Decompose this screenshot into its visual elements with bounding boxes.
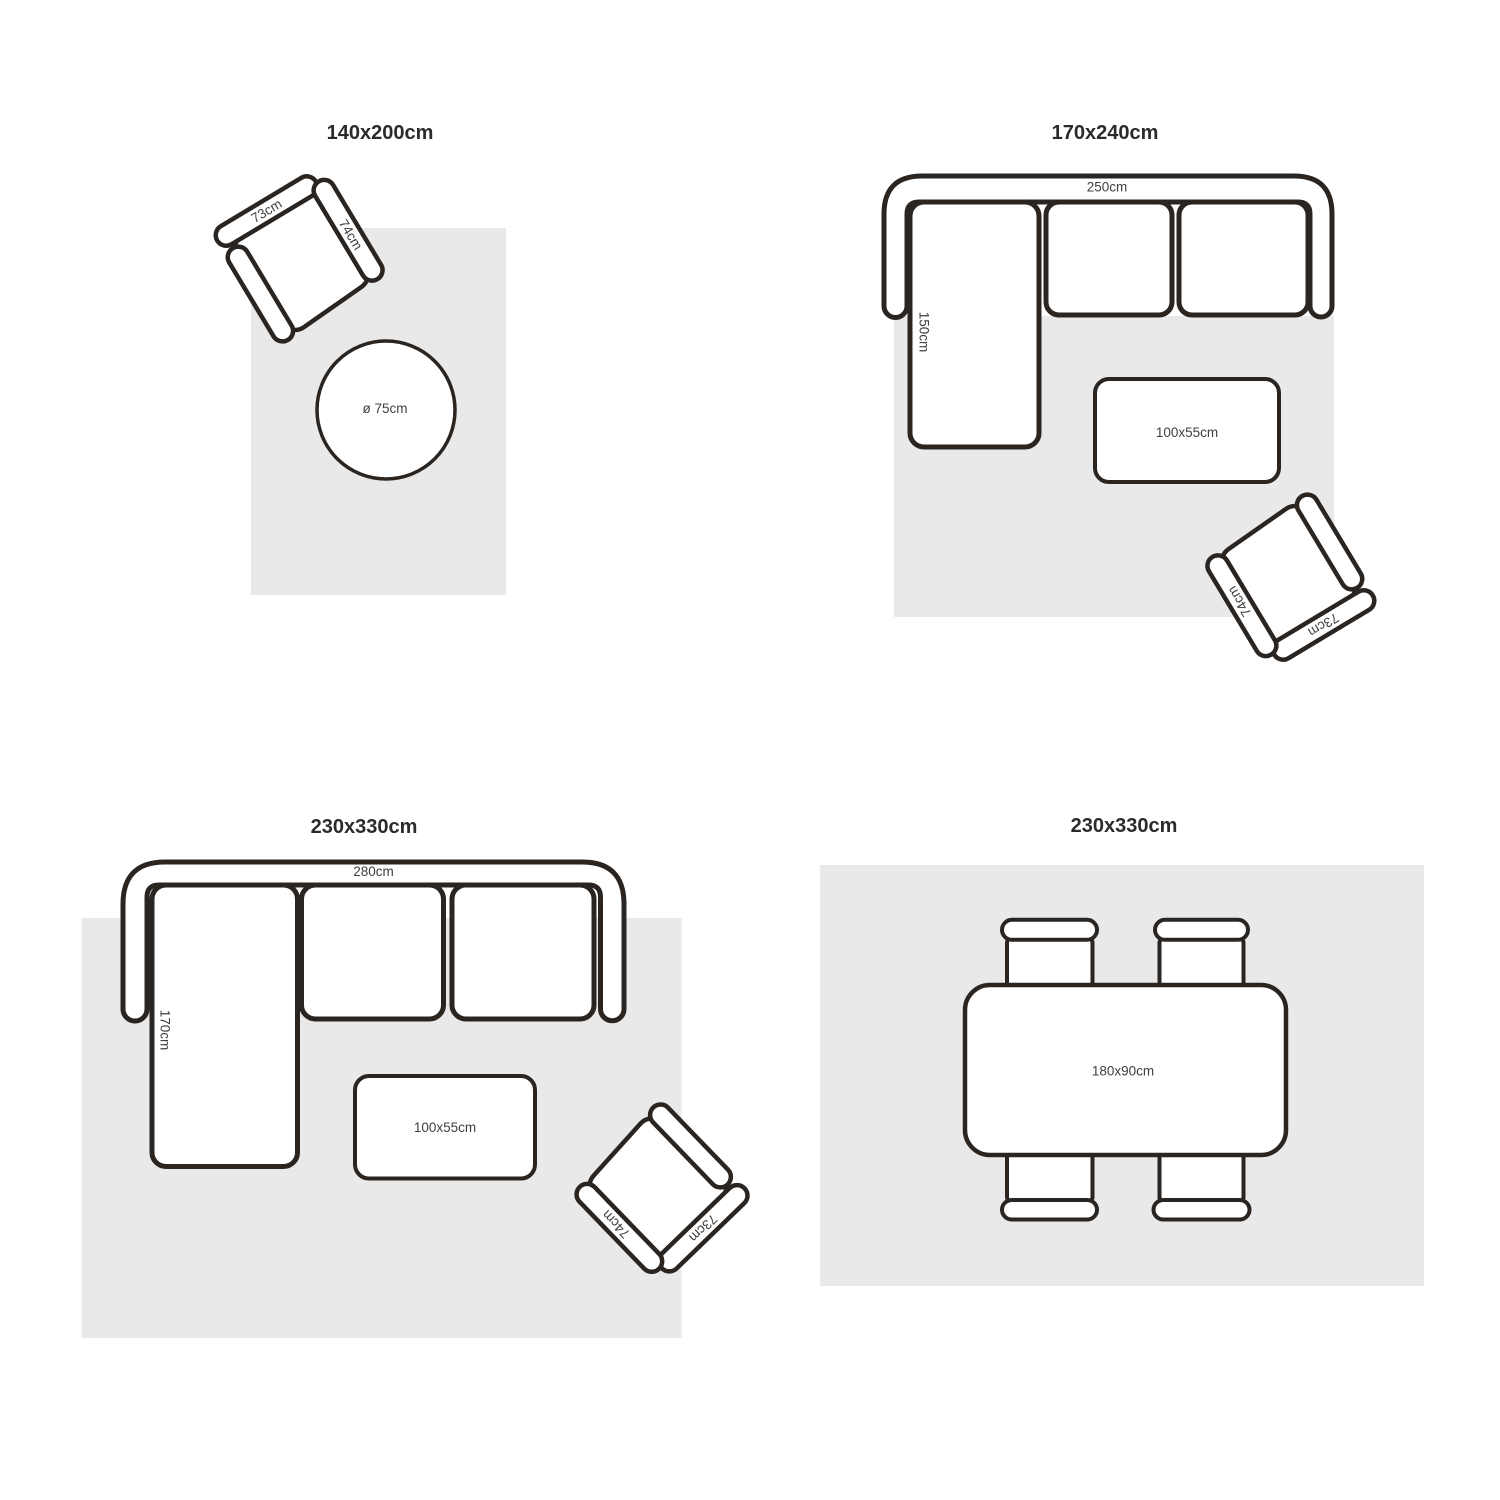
svg-text:180x90cm: 180x90cm xyxy=(1092,1064,1154,1079)
svg-text:280cm: 280cm xyxy=(353,864,394,879)
svg-text:140x200cm: 140x200cm xyxy=(327,122,434,144)
svg-text:170cm: 170cm xyxy=(158,1010,173,1051)
svg-text:170x240cm: 170x240cm xyxy=(1052,122,1159,144)
svg-text:250cm: 250cm xyxy=(1087,180,1128,195)
svg-text:230x330cm: 230x330cm xyxy=(1071,815,1178,837)
svg-text:ø 75cm: ø 75cm xyxy=(362,401,407,416)
svg-text:150cm: 150cm xyxy=(917,312,932,353)
svg-text:100x55cm: 100x55cm xyxy=(1156,425,1218,440)
svg-text:100x55cm: 100x55cm xyxy=(414,1120,476,1135)
svg-text:230x330cm: 230x330cm xyxy=(311,816,418,838)
